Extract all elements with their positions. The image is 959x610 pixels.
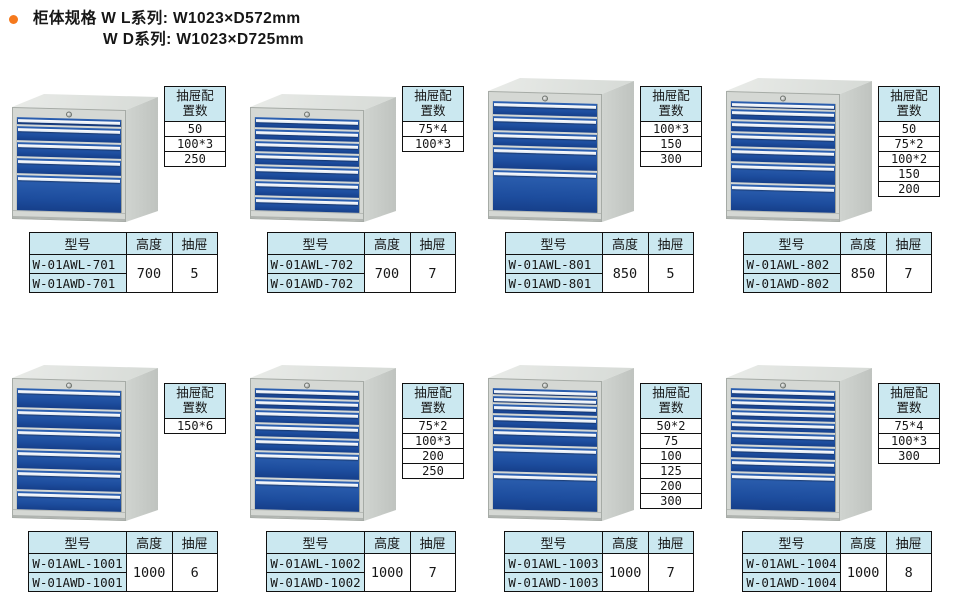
drawer xyxy=(255,197,359,213)
model-number-wl: W-01AWL-701 xyxy=(29,255,126,274)
product-upper-area: 抽屉配 置数 150*6 xyxy=(4,355,242,527)
config-row-value: 150 xyxy=(879,167,940,182)
drawer xyxy=(493,396,597,405)
page-header: 柜体规格 W L系列: W1023×D572mm W D系列: W1023×D7… xyxy=(0,0,959,50)
drawer-handle xyxy=(494,150,596,156)
drawer-handle xyxy=(732,165,834,171)
cabinet-illustration xyxy=(488,78,634,226)
drawer-handle xyxy=(732,434,834,440)
model-table: 型号 高度 抽屉 W-01AWL-1002 1000 7 W-01AWD-100… xyxy=(266,531,455,592)
page-title: 柜体规格 W L系列: W1023×D572mm W D系列: W1023×D7… xyxy=(33,8,304,50)
model-number-wd: W-01AWD-801 xyxy=(505,274,602,293)
drawer-config-header: 抽屉配 置数 xyxy=(403,87,464,122)
model-row-wl: W-01AWL-802 850 7 xyxy=(743,255,931,274)
config-row-value: 50 xyxy=(879,122,940,137)
model-row-wl: W-01AWL-1001 1000 6 xyxy=(29,554,217,573)
product-cell: 抽屉配 置数 5075*2100*2150200 型号 高度 抽屉 W-01AW xyxy=(718,78,956,293)
drawer xyxy=(493,429,597,447)
drawer-config-header: 抽屉配 置数 xyxy=(403,384,464,419)
model-number-wd: W-01AWD-1003 xyxy=(505,573,602,592)
drawer-config-header-line2: 置数 xyxy=(881,401,937,416)
drawer-column-header: 抽屉 xyxy=(410,233,455,255)
drawer xyxy=(731,163,835,185)
drawer xyxy=(17,470,121,491)
drawer xyxy=(17,450,121,471)
config-row-value: 200 xyxy=(879,182,940,197)
cabinet-side-panel xyxy=(840,365,872,524)
config-row-value: 75*2 xyxy=(403,419,464,434)
model-number-wd: W-01AWD-1001 xyxy=(29,573,126,592)
lock-icon xyxy=(304,111,310,117)
height-column-header: 高度 xyxy=(364,532,410,554)
drawer xyxy=(731,121,835,133)
drawer xyxy=(731,101,835,110)
drawer-handle xyxy=(494,172,596,178)
cabinet-illustration xyxy=(250,365,396,525)
products-row-1: 抽屉配 置数 50100*3250 型号 高度 抽屉 W-01AWL-701 xyxy=(0,78,959,293)
drawer-config-header-line1: 抽屉配 xyxy=(881,89,937,104)
drawer xyxy=(255,154,359,167)
drawer xyxy=(493,404,597,416)
lock-icon xyxy=(780,382,786,388)
product-upper-area: 抽屉配 置数 75*4100*3300 xyxy=(718,355,956,527)
config-row: 75 xyxy=(641,434,702,449)
config-row: 75*4 xyxy=(879,419,940,434)
config-row: 150 xyxy=(879,167,940,182)
cabinet-illustration xyxy=(250,94,396,226)
product-cell: 抽屉配 置数 75*4100*3300 型号 高度 抽屉 W-01AWL-100 xyxy=(718,355,956,592)
drawer-config-table: 抽屉配 置数 75*2100*3200250 xyxy=(402,383,464,479)
config-row-value: 250 xyxy=(403,464,464,479)
model-row-wl: W-01AWL-1002 1000 7 xyxy=(267,554,455,573)
drawer-count-value: 7 xyxy=(648,554,693,592)
drawer xyxy=(731,388,835,400)
cabinet-side-panel xyxy=(602,365,634,524)
product-upper-area: 抽屉配 置数 50100*3250 xyxy=(4,78,242,228)
drawer-column-header: 抽屉 xyxy=(410,532,455,554)
height-column-header: 高度 xyxy=(840,532,886,554)
drawer-handle xyxy=(732,448,834,454)
drawer-config-table: 抽屉配 置数 50100*3250 xyxy=(164,86,226,167)
drawer-config-header-line2: 置数 xyxy=(167,104,223,119)
drawer-config-header-line1: 抽屉配 xyxy=(405,89,461,104)
drawer-config-body: 100*3150300 xyxy=(641,122,702,167)
drawer xyxy=(731,184,835,213)
model-row-wl: W-01AWL-801 850 5 xyxy=(505,255,693,274)
drawer-handle xyxy=(256,455,358,461)
drawer-handle xyxy=(256,131,358,137)
drawer xyxy=(17,491,121,512)
cabinet-side-panel xyxy=(602,78,634,225)
product-cell: 抽屉配 置数 75*4100*3 型号 高度 抽屉 W-01AWL-702 xyxy=(242,78,480,293)
drawer-count-value: 7 xyxy=(886,255,931,293)
cabinet-front-panel xyxy=(726,91,840,222)
model-number-wl: W-01AWL-1003 xyxy=(505,554,602,573)
cabinet-front-panel xyxy=(12,378,126,521)
product-upper-area: 抽屉配 置数 75*2100*3200250 xyxy=(242,355,480,527)
config-row: 150*6 xyxy=(165,419,226,434)
config-row: 50*2 xyxy=(641,419,702,434)
drawer-handle xyxy=(256,183,358,189)
height-column-header: 高度 xyxy=(126,532,172,554)
product-cell: 抽屉配 置数 150*6 型号 高度 抽屉 W-01AWL-1001 xyxy=(4,355,242,592)
lock-icon xyxy=(66,111,72,117)
drawer-handle xyxy=(18,411,120,417)
drawer-config-table: 抽屉配 置数 50*275100125200300 xyxy=(640,383,702,509)
height-value: 1000 xyxy=(126,554,172,592)
title-line-wd: W D系列: W1023×D725mm xyxy=(33,29,304,50)
drawer xyxy=(493,132,597,148)
drawer-config-header-line2: 置数 xyxy=(405,104,461,119)
config-row-value: 200 xyxy=(403,449,464,464)
drawer-config-body: 75*4100*3 xyxy=(403,122,464,152)
config-row-value: 125 xyxy=(641,464,702,479)
drawer-config-table: 抽屉配 置数 75*4100*3300 xyxy=(878,383,940,464)
drawer-config-header-line2: 置数 xyxy=(643,401,699,416)
cabinet-front-panel xyxy=(250,378,364,521)
drawer-config-header-line2: 置数 xyxy=(881,104,937,119)
drawer xyxy=(731,110,835,122)
drawer-handle xyxy=(256,481,358,487)
model-number-wl: W-01AWL-801 xyxy=(505,255,602,274)
drawer xyxy=(17,142,121,159)
drawer-handle xyxy=(18,390,120,396)
drawer-column-header: 抽屉 xyxy=(172,532,217,554)
drawer-config-header-line1: 抽屉配 xyxy=(405,386,461,401)
drawer-config-header-line2: 置数 xyxy=(643,104,699,119)
config-row-value: 300 xyxy=(641,494,702,509)
drawer-handle xyxy=(494,134,596,140)
drawer-handle xyxy=(732,401,834,407)
drawer xyxy=(731,421,835,433)
model-column-header: 型号 xyxy=(505,233,602,255)
drawer xyxy=(255,453,359,480)
drawer xyxy=(17,409,121,430)
drawer xyxy=(731,410,835,422)
model-number-wl: W-01AWL-1002 xyxy=(267,554,364,573)
product-upper-area: 抽屉配 置数 75*4100*3 xyxy=(242,78,480,228)
drawer xyxy=(493,447,597,474)
drawer-config-body: 50100*3250 xyxy=(165,122,226,167)
model-column-header: 型号 xyxy=(267,233,364,255)
config-row-value: 100*3 xyxy=(403,137,464,152)
config-row-value: 50*2 xyxy=(641,419,702,434)
model-table-header-row: 型号 高度 抽屉 xyxy=(267,532,455,554)
drawer xyxy=(493,148,597,171)
drawer xyxy=(255,181,359,197)
drawer-config-table: 抽屉配 置数 75*4100*3 xyxy=(402,86,464,152)
model-table: 型号 高度 抽屉 W-01AWL-1004 1000 8 W-01AWD-100… xyxy=(742,531,931,592)
height-value: 1000 xyxy=(840,554,886,592)
cabinet-side-panel xyxy=(364,365,396,524)
drawer-handle xyxy=(732,150,834,156)
model-row-wl: W-01AWL-1004 1000 8 xyxy=(743,554,931,573)
drawer-config-header-line1: 抽屉配 xyxy=(881,386,937,401)
drawer xyxy=(731,432,835,447)
drawer-config-body: 75*4100*3300 xyxy=(879,419,940,464)
config-row: 100*3 xyxy=(403,434,464,449)
model-column-header: 型号 xyxy=(29,532,126,554)
lock-icon xyxy=(542,95,548,101)
model-table-header-row: 型号 高度 抽屉 xyxy=(743,532,931,554)
drawer-config-body: 5075*2100*2150200 xyxy=(879,122,940,197)
drawer-handle xyxy=(256,390,358,396)
height-column-header: 高度 xyxy=(602,532,648,554)
config-row: 100*3 xyxy=(165,137,226,152)
drawer xyxy=(17,126,121,143)
config-row: 100*3 xyxy=(879,434,940,449)
drawer xyxy=(731,133,835,149)
config-row: 200 xyxy=(641,479,702,494)
drawer-handle xyxy=(732,412,834,418)
drawer-handle xyxy=(256,412,358,418)
drawer xyxy=(255,117,359,130)
height-column-header: 高度 xyxy=(364,233,410,255)
drawer xyxy=(493,473,597,512)
drawer-handle xyxy=(732,423,834,429)
config-row-value: 100*2 xyxy=(879,152,940,167)
drawer xyxy=(493,170,597,213)
drawer xyxy=(17,388,121,409)
drawer-handle xyxy=(256,119,358,125)
drawer xyxy=(255,129,359,142)
drawer-handle xyxy=(18,493,120,499)
drawer-handle xyxy=(18,431,120,437)
drawer-count-value: 7 xyxy=(410,554,455,592)
model-table: 型号 高度 抽屉 W-01AWL-802 850 7 W-01AWD-802 xyxy=(743,232,932,293)
cabinet-front-panel xyxy=(488,91,602,222)
config-row-value: 75*4 xyxy=(403,122,464,137)
config-row: 300 xyxy=(879,449,940,464)
drawer-handle xyxy=(732,123,834,129)
config-row: 300 xyxy=(641,494,702,509)
model-number-wd: W-01AWD-802 xyxy=(743,274,840,293)
drawer-handle xyxy=(494,431,596,437)
drawer-handle xyxy=(732,462,834,468)
cabinet-side-panel xyxy=(126,365,158,524)
model-table-header-row: 型号 高度 抽屉 xyxy=(505,532,693,554)
drawer-handle xyxy=(256,156,358,162)
drawer xyxy=(493,117,597,133)
drawer xyxy=(17,117,121,127)
drawer-stack xyxy=(16,388,122,512)
drawer-config-header: 抽屉配 置数 xyxy=(641,384,702,419)
product-cell: 抽屉配 置数 75*2100*3200250 型号 高度 抽屉 W-01AWL- xyxy=(242,355,480,592)
drawer-stack xyxy=(254,388,360,512)
drawer xyxy=(255,479,359,512)
model-number-wl: W-01AWL-1004 xyxy=(743,554,840,573)
config-row-value: 150*6 xyxy=(165,419,226,434)
drawer-config-header-line2: 置数 xyxy=(167,401,223,416)
products-row-2: 抽屉配 置数 150*6 型号 高度 抽屉 W-01AWL-1001 xyxy=(0,355,959,592)
drawer-column-header: 抽屉 xyxy=(886,532,931,554)
config-row: 100*3 xyxy=(403,137,464,152)
config-row: 75*2 xyxy=(403,419,464,434)
drawer-config-table: 抽屉配 置数 5075*2100*2150200 xyxy=(878,86,940,197)
config-row-value: 300 xyxy=(641,152,702,167)
model-number-wd: W-01AWD-1002 xyxy=(267,573,364,592)
cabinet-illustration xyxy=(12,94,158,226)
drawer-config-table: 抽屉配 置数 150*6 xyxy=(164,383,226,434)
drawer-handle xyxy=(494,390,596,396)
drawer xyxy=(255,410,359,425)
drawer xyxy=(255,439,359,454)
cabinet-front-panel xyxy=(250,107,364,222)
lock-icon xyxy=(780,95,786,101)
drawer-config-header-line1: 抽屉配 xyxy=(167,386,223,401)
drawer xyxy=(255,388,359,400)
height-value: 700 xyxy=(126,255,172,293)
config-row-value: 100*3 xyxy=(165,137,226,152)
model-number-wl: W-01AWL-702 xyxy=(267,255,364,274)
drawer-handle xyxy=(18,161,120,167)
product-upper-area: 抽屉配 置数 100*3150300 xyxy=(480,78,718,228)
drawer-column-header: 抽屉 xyxy=(886,233,931,255)
drawer-handle xyxy=(18,119,120,125)
drawer-config-header-line1: 抽屉配 xyxy=(643,89,699,104)
config-row-value: 50 xyxy=(165,122,226,137)
config-row-value: 100*3 xyxy=(879,434,940,449)
model-table: 型号 高度 抽屉 W-01AWL-801 850 5 W-01AWD-801 xyxy=(505,232,694,293)
config-row-value: 75 xyxy=(641,434,702,449)
config-row-value: 100*3 xyxy=(641,122,702,137)
model-row-wl: W-01AWL-701 700 5 xyxy=(29,255,217,274)
drawer-handle xyxy=(494,398,596,404)
drawer-stack xyxy=(730,101,836,213)
drawer-handle xyxy=(18,177,120,183)
model-number-wd: W-01AWD-702 xyxy=(267,274,364,293)
drawer-handle xyxy=(256,199,358,205)
model-number-wd: W-01AWD-701 xyxy=(29,274,126,293)
cabinet-side-panel xyxy=(840,78,872,225)
drawer-handle xyxy=(494,406,596,412)
drawer-handle xyxy=(256,426,358,432)
cabinet-illustration xyxy=(488,365,634,525)
drawer-config-header: 抽屉配 置数 xyxy=(165,384,226,419)
model-number-wl: W-01AWL-802 xyxy=(743,255,840,274)
cabinet-side-panel xyxy=(364,94,396,225)
drawer-handle xyxy=(18,472,120,478)
height-value: 700 xyxy=(364,255,410,293)
model-column-header: 型号 xyxy=(267,532,364,554)
model-table-header-row: 型号 高度 抽屉 xyxy=(29,233,217,255)
model-table: 型号 高度 抽屉 W-01AWL-1001 1000 6 W-01AWD-100… xyxy=(28,531,217,592)
config-row: 50 xyxy=(165,122,226,137)
drawer xyxy=(255,399,359,411)
model-row-wl: W-01AWL-702 700 7 xyxy=(267,255,455,274)
drawer-config-header: 抽屉配 置数 xyxy=(879,87,940,122)
config-row: 250 xyxy=(403,464,464,479)
drawer-count-value: 8 xyxy=(886,554,931,592)
drawer-handle xyxy=(732,390,834,396)
cabinet-side-panel xyxy=(126,94,158,225)
height-column-header: 高度 xyxy=(126,233,172,255)
model-table-header-row: 型号 高度 抽屉 xyxy=(743,233,931,255)
drawer xyxy=(731,473,835,511)
drawer xyxy=(17,175,121,213)
config-row: 200 xyxy=(403,449,464,464)
drawer-handle xyxy=(732,135,834,141)
model-column-header: 型号 xyxy=(29,233,126,255)
drawer-handle xyxy=(494,103,596,109)
config-row-value: 150 xyxy=(641,137,702,152)
config-row: 200 xyxy=(879,182,940,197)
product-cell: 抽屉配 置数 50100*3250 型号 高度 抽屉 W-01AWL-701 xyxy=(4,78,242,293)
drawer-handle xyxy=(256,143,358,149)
cabinet-illustration xyxy=(726,365,872,525)
drawer-handle xyxy=(732,186,834,192)
lock-icon xyxy=(304,382,310,388)
drawer-count-value: 5 xyxy=(172,255,217,293)
config-row: 100 xyxy=(641,449,702,464)
product-cell: 抽屉配 置数 100*3150300 型号 高度 抽屉 W-01AWL-801 xyxy=(480,78,718,293)
lock-icon xyxy=(542,382,548,388)
product-cell: 抽屉配 置数 50*275100125200300 型号 高度 抽屉 W-01A xyxy=(480,355,718,592)
drawer-column-header: 抽屉 xyxy=(648,532,693,554)
drawer-column-header: 抽屉 xyxy=(648,233,693,255)
drawer-handle xyxy=(494,417,596,423)
height-value: 1000 xyxy=(602,554,648,592)
model-column-header: 型号 xyxy=(743,532,840,554)
model-table: 型号 高度 抽屉 W-01AWL-702 700 7 W-01AWD-702 xyxy=(267,232,456,293)
model-table: 型号 高度 抽屉 W-01AWL-701 700 5 W-01AWD-701 xyxy=(29,232,218,293)
drawer-stack xyxy=(492,388,598,512)
drawer-stack xyxy=(492,101,598,213)
drawer xyxy=(493,101,597,117)
config-row: 300 xyxy=(641,152,702,167)
drawer xyxy=(255,424,359,439)
config-row: 75*2 xyxy=(879,137,940,152)
model-number-wd: W-01AWD-1004 xyxy=(743,573,840,592)
drawer-handle xyxy=(494,475,596,481)
drawer-config-table: 抽屉配 置数 100*3150300 xyxy=(640,86,702,167)
height-value: 850 xyxy=(840,255,886,293)
model-column-header: 型号 xyxy=(743,233,840,255)
product-upper-area: 抽屉配 置数 5075*2100*2150200 xyxy=(718,78,956,228)
config-row: 150 xyxy=(641,137,702,152)
config-row: 75*4 xyxy=(403,122,464,137)
model-table-header-row: 型号 高度 抽屉 xyxy=(505,233,693,255)
model-table-header-row: 型号 高度 抽屉 xyxy=(267,233,455,255)
drawer-handle xyxy=(732,476,834,482)
drawer-count-value: 7 xyxy=(410,255,455,293)
height-value: 1000 xyxy=(364,554,410,592)
config-row-value: 300 xyxy=(879,449,940,464)
config-row: 250 xyxy=(165,152,226,167)
drawer-handle xyxy=(732,112,834,118)
drawer-stack xyxy=(730,388,836,512)
model-number-wl: W-01AWL-1001 xyxy=(29,554,126,573)
config-row: 100*2 xyxy=(879,152,940,167)
config-row-value: 200 xyxy=(641,479,702,494)
config-row-value: 100 xyxy=(641,449,702,464)
drawer-stack xyxy=(16,117,122,213)
config-row: 50 xyxy=(879,122,940,137)
drawer-handle xyxy=(256,168,358,174)
cabinet-illustration xyxy=(12,365,158,525)
config-row: 100*3 xyxy=(641,122,702,137)
title-line-wl: 柜体规格 W L系列: W1023×D572mm xyxy=(33,8,304,29)
drawer xyxy=(17,159,121,176)
drawer-handle xyxy=(18,128,120,134)
drawer-handle xyxy=(494,119,596,125)
config-row-value: 75*2 xyxy=(879,137,940,152)
model-table: 型号 高度 抽屉 W-01AWL-1003 1000 7 W-01AWD-100… xyxy=(504,531,693,592)
drawer xyxy=(255,166,359,182)
drawer-config-header-line1: 抽屉配 xyxy=(167,89,223,104)
model-column-header: 型号 xyxy=(505,532,602,554)
drawer-handle xyxy=(256,441,358,447)
